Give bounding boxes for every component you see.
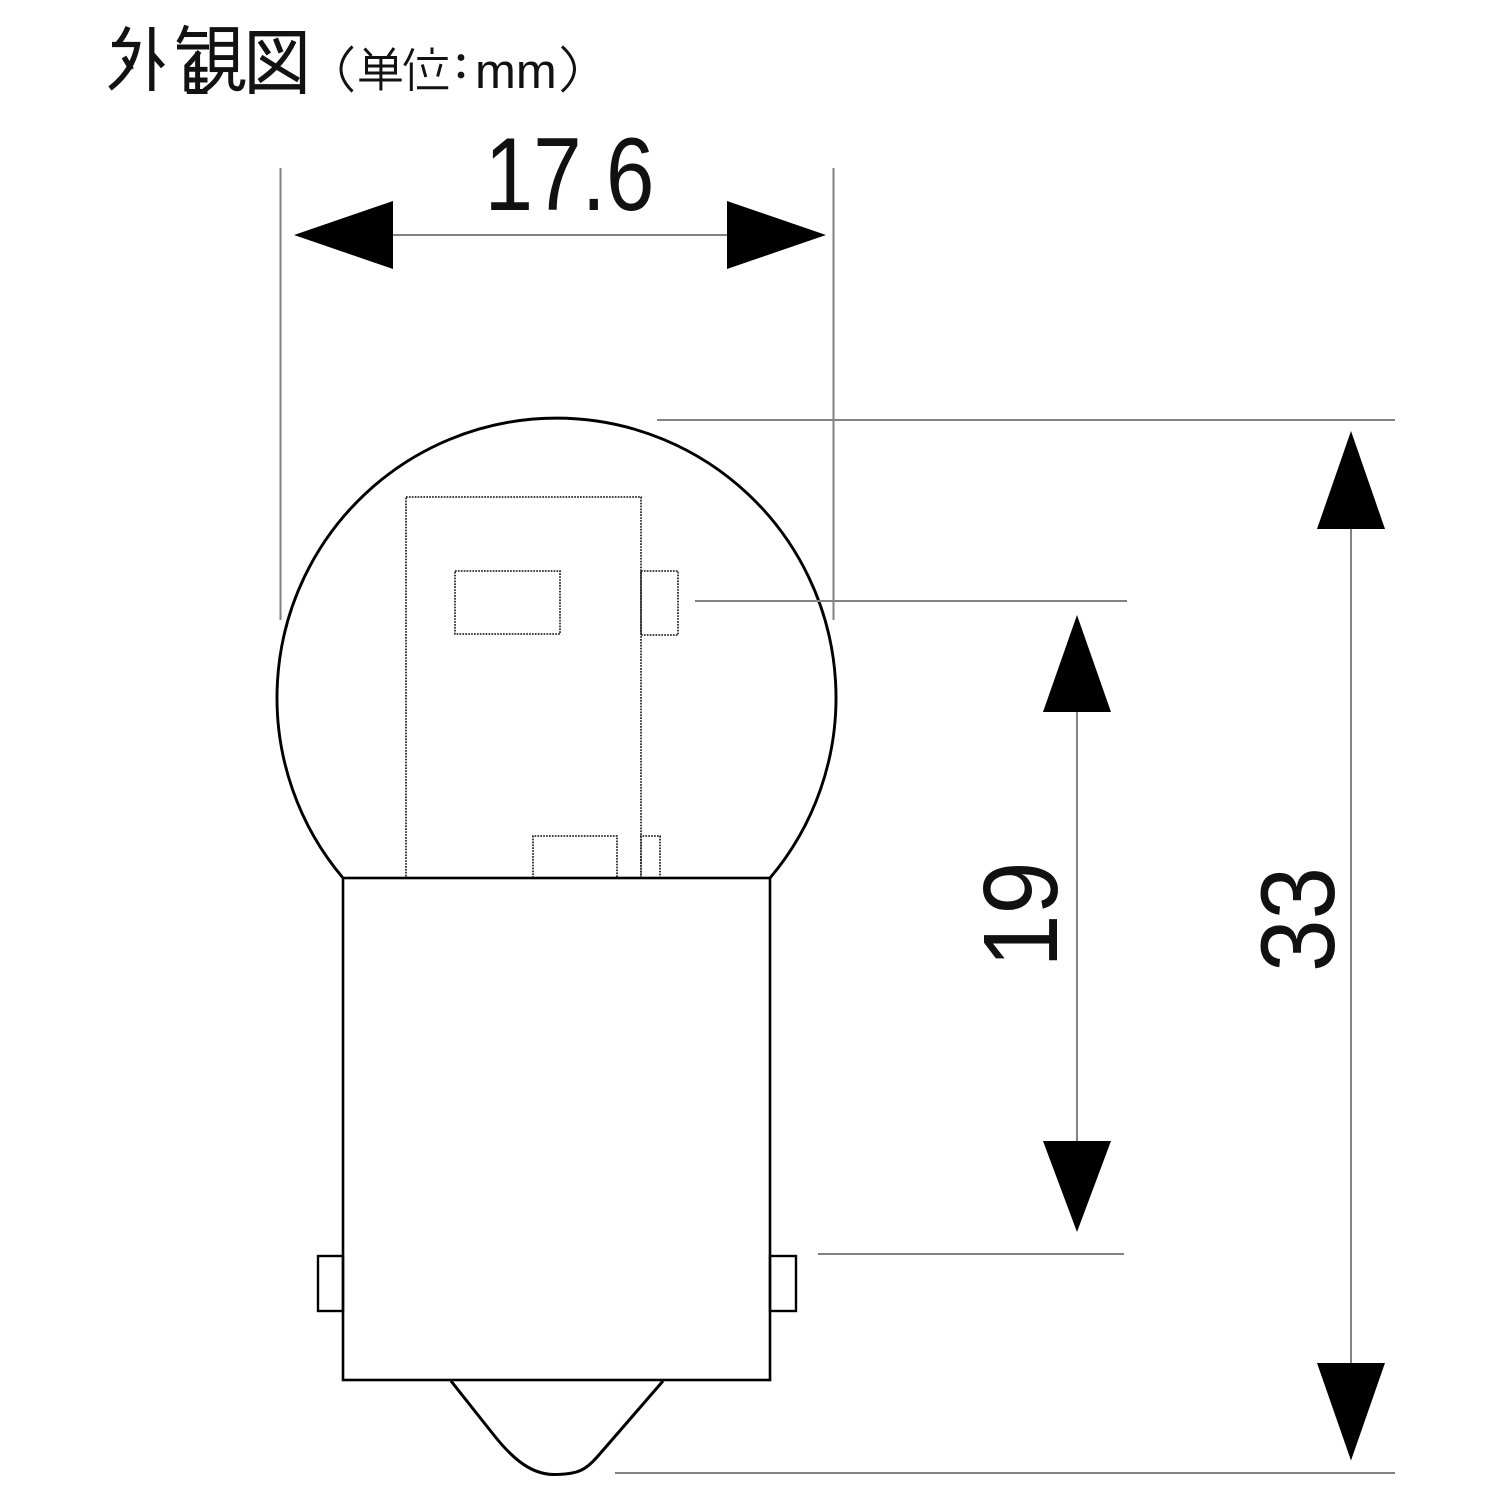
svg-text:17.6: 17.6 [484,117,654,233]
svg-text:33: 33 [1240,867,1357,972]
svg-text:19: 19 [962,861,1080,967]
svg-text:mm: mm [475,45,557,99]
